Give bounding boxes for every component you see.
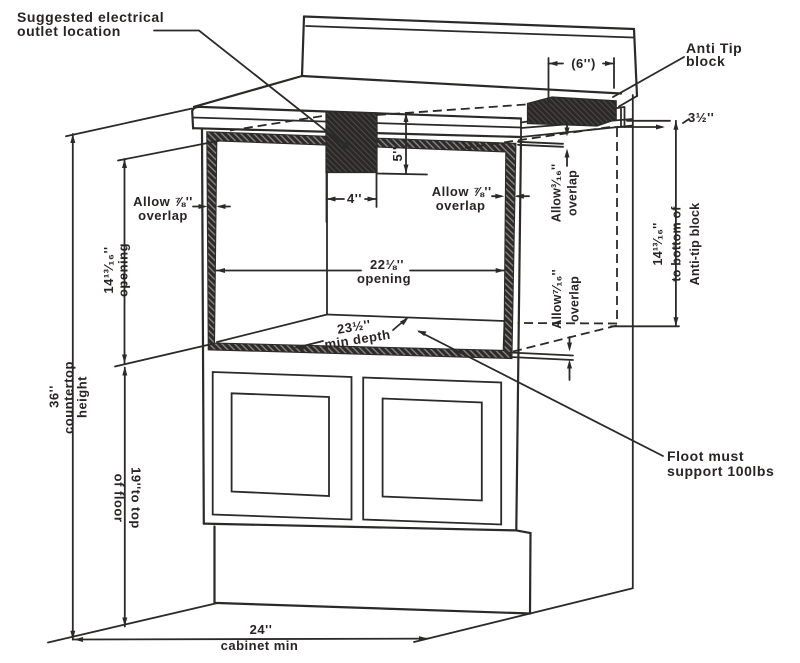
svg-text:overlap: overlap xyxy=(566,170,580,216)
svg-text:overlap: overlap xyxy=(138,208,188,223)
svg-text:opening: opening xyxy=(116,243,131,297)
svg-text:4'': 4'' xyxy=(347,191,362,206)
svg-text:Allow³⁄₁₆'': Allow³⁄₁₆'' xyxy=(550,164,564,223)
svg-text:Allow⁷⁄₁₆'': Allow⁷⁄₁₆'' xyxy=(550,269,564,329)
svg-text:22⅛'': 22⅛'' xyxy=(370,257,404,272)
svg-text:Floot must: Floot must xyxy=(667,448,744,464)
svg-text:of floor: of floor xyxy=(112,474,127,523)
svg-text:support 100lbs: support 100lbs xyxy=(667,463,774,479)
svg-text:overlap: overlap xyxy=(568,276,582,322)
svg-text:opening: opening xyxy=(357,271,411,286)
svg-text:overlap: overlap xyxy=(436,198,486,213)
svg-text:height: height xyxy=(75,376,90,418)
svg-text:24'': 24'' xyxy=(250,622,273,637)
svg-text:14¹³⁄₁₆'': 14¹³⁄₁₆'' xyxy=(651,223,665,266)
svg-text:(6''): (6'') xyxy=(571,56,596,71)
svg-text:Allow ⅞'': Allow ⅞'' xyxy=(432,184,492,199)
svg-text:cabinet min: cabinet min xyxy=(221,638,299,653)
svg-text:19''to top: 19''to top xyxy=(129,467,144,529)
svg-text:Anti-tip block: Anti-tip block xyxy=(688,203,702,286)
svg-text:5'': 5'' xyxy=(390,147,405,162)
svg-text:3½'': 3½'' xyxy=(688,110,714,125)
svg-text:Allow ⅞'': Allow ⅞'' xyxy=(133,194,193,209)
svg-text:to bottom of: to bottom of xyxy=(670,206,684,282)
svg-text:outlet location: outlet location xyxy=(17,23,121,39)
svg-text:14¹³⁄₁₆'': 14¹³⁄₁₆'' xyxy=(101,246,116,293)
svg-text:36'': 36'' xyxy=(47,385,62,408)
svg-text:block: block xyxy=(686,53,725,69)
